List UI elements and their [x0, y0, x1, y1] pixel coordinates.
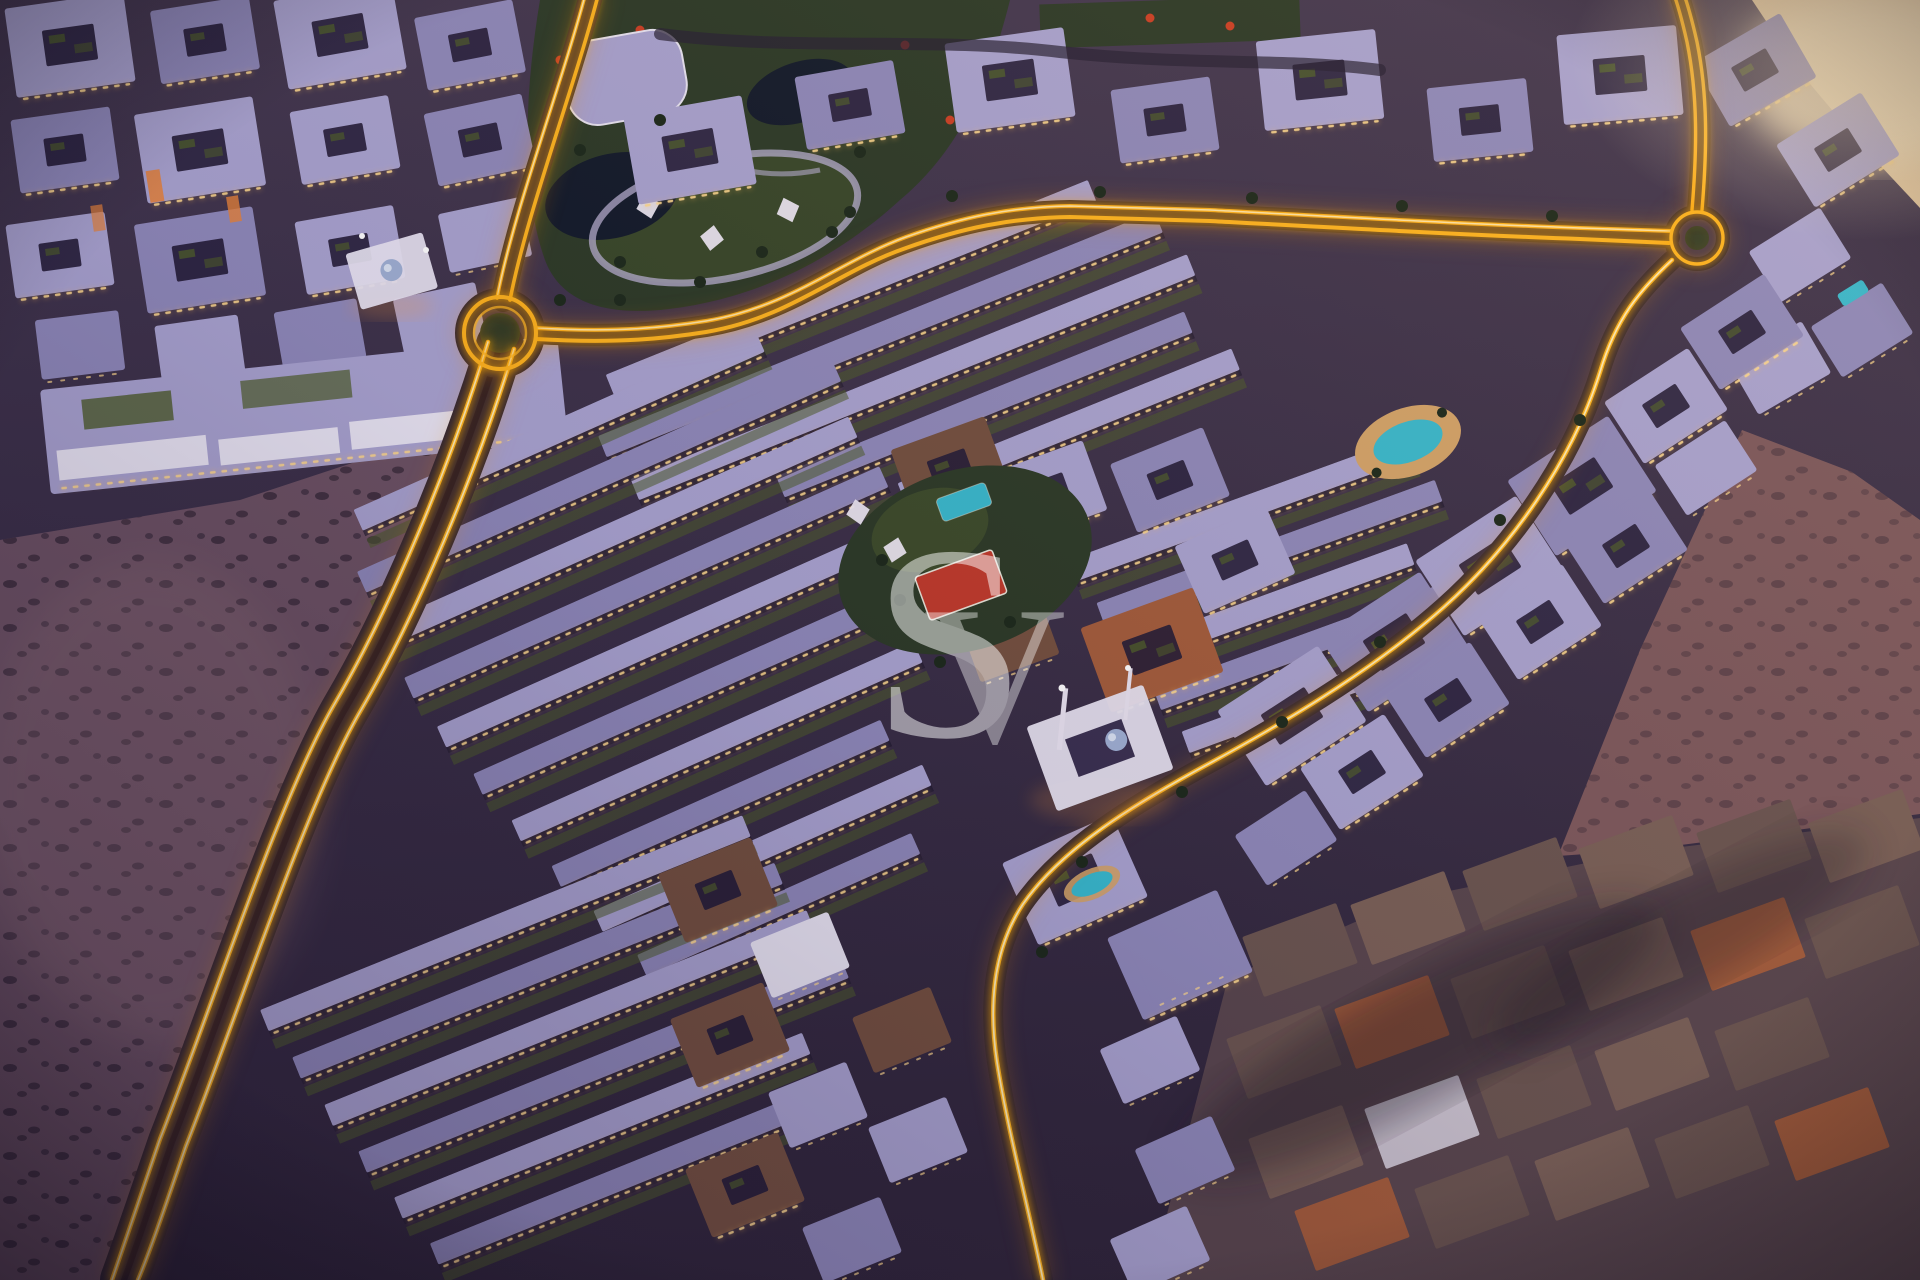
masterplan-scene: V S: [0, 0, 1920, 1280]
aerial-render: V S: [0, 0, 1920, 1280]
watermark-letter-s: S: [872, 489, 1027, 797]
